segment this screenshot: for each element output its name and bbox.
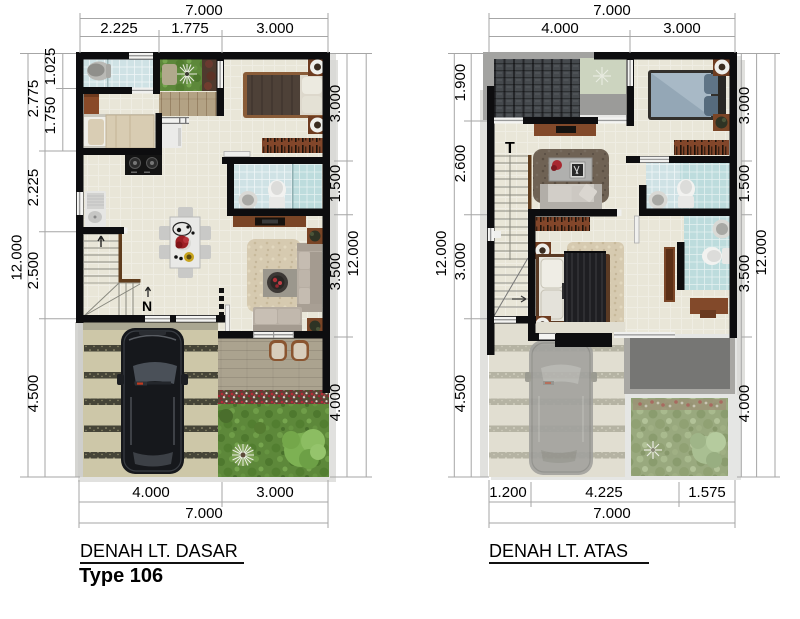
svg-text:3.000: 3.000 (736, 87, 753, 125)
svg-text:3.000: 3.000 (256, 20, 294, 37)
svg-text:4.500: 4.500 (452, 375, 469, 413)
svg-text:DENAH LT. DASAR: DENAH LT. DASAR (80, 541, 238, 561)
svg-text:2.775: 2.775 (25, 80, 42, 118)
svg-text:3.000: 3.000 (452, 243, 469, 281)
svg-text:4.225: 4.225 (585, 484, 623, 501)
svg-text:Type 106: Type 106 (79, 565, 163, 587)
svg-text:2.600: 2.600 (452, 145, 469, 183)
svg-text:2.225: 2.225 (25, 169, 42, 207)
svg-text:3.000: 3.000 (256, 484, 294, 501)
svg-text:3.000: 3.000 (663, 20, 701, 37)
svg-text:7.000: 7.000 (593, 2, 631, 19)
svg-text:4.000: 4.000 (736, 385, 753, 423)
svg-text:3.500: 3.500 (327, 253, 344, 291)
svg-text:1.900: 1.900 (452, 64, 469, 102)
svg-text:12.000: 12.000 (433, 231, 450, 277)
svg-text:1.500: 1.500 (736, 165, 753, 203)
svg-text:DENAH LT. ATAS: DENAH LT. ATAS (489, 541, 628, 561)
svg-text:2.225: 2.225 (100, 20, 138, 37)
svg-text:1.750: 1.750 (42, 97, 59, 135)
svg-text:4.500: 4.500 (25, 375, 42, 413)
svg-text:1.200: 1.200 (489, 484, 527, 501)
svg-text:T: T (505, 140, 515, 157)
svg-text:7.000: 7.000 (593, 505, 631, 522)
svg-text:3.500: 3.500 (736, 255, 753, 293)
svg-text:2.500: 2.500 (25, 252, 42, 290)
svg-text:12.000: 12.000 (9, 235, 26, 281)
svg-text:12.000: 12.000 (753, 230, 770, 276)
svg-text:7.000: 7.000 (185, 505, 223, 522)
svg-text:3.000: 3.000 (327, 85, 344, 123)
svg-text:1.775: 1.775 (171, 20, 209, 37)
svg-text:1.575: 1.575 (688, 484, 726, 501)
svg-text:4.000: 4.000 (132, 484, 170, 501)
svg-text:N: N (142, 298, 152, 314)
svg-text:7.000: 7.000 (185, 2, 223, 19)
svg-text:12.000: 12.000 (345, 231, 362, 277)
svg-text:4.000: 4.000 (327, 384, 344, 422)
svg-text:4.000: 4.000 (541, 20, 579, 37)
svg-text:1.500: 1.500 (327, 165, 344, 203)
svg-text:1.025: 1.025 (42, 48, 59, 86)
